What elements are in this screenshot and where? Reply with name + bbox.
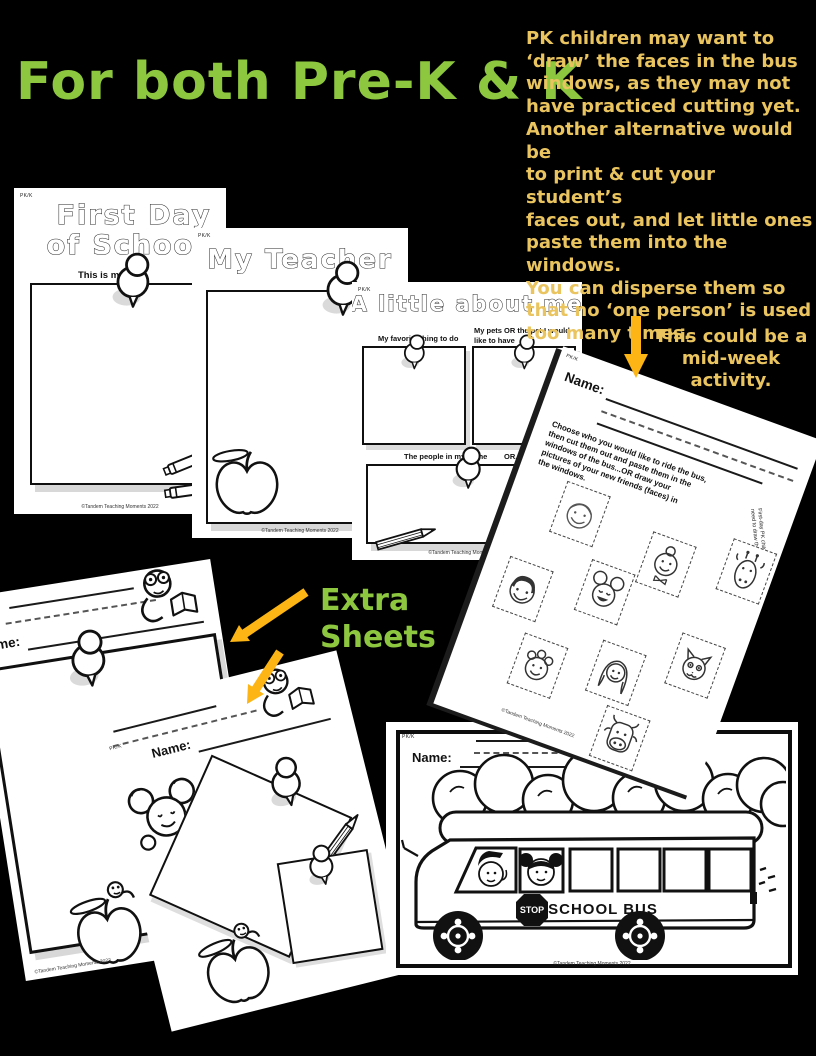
exhaust-dashes-icon — [759, 868, 776, 891]
face-cow-icon — [589, 705, 651, 771]
my-pets-label: like to have — [474, 336, 515, 345]
my-teacher-title: My Teacher — [192, 236, 408, 280]
page-title: For both Pre-K & K — [16, 52, 516, 112]
grade-corner-label: PK/K — [402, 734, 415, 740]
face-boy-dark-hair-icon — [492, 556, 554, 622]
bus-window — [618, 849, 660, 891]
flyer-page: PK/K First Day of School This is me! ©Ta… — [0, 0, 816, 1056]
pushpin-icon — [400, 334, 430, 372]
face-cat-icon — [664, 632, 726, 698]
extra-sheets-label: Extra Sheets — [320, 582, 436, 656]
svg-text:First Day: First Day — [57, 200, 212, 231]
name-label: Name: — [563, 369, 607, 397]
face-boy-curly-hair-icon — [507, 632, 569, 698]
pushpin-icon — [60, 626, 119, 695]
apple-icon — [208, 448, 286, 520]
bus-wheel-icon — [615, 911, 665, 960]
face-girl-with-bun-icon — [635, 531, 697, 597]
school-bus-illustration: STOP SCHOOL BUS — [398, 752, 786, 960]
bus-window — [664, 849, 706, 891]
svg-text:STOP: STOP — [520, 905, 544, 915]
name-label: Name: — [0, 634, 21, 655]
bus-window — [570, 849, 612, 891]
bus-wheel-icon — [433, 911, 483, 960]
write-line — [113, 705, 216, 733]
bus-window — [709, 849, 751, 891]
diagonal-arrows-icon — [222, 580, 322, 712]
face-mouse-icon — [574, 559, 636, 625]
grade-corner-label: PK/K — [565, 353, 579, 363]
name-label: Name: — [150, 737, 192, 761]
face-boy-smiling-icon — [549, 481, 611, 547]
pushpin-icon — [110, 252, 158, 312]
midweek-note: This could be a mid-week activity. — [648, 326, 814, 392]
copyright-footer: ©Tandem Teaching Moments 2022 — [386, 961, 798, 967]
intro-note: PK children may want to ‘draw’ the faces… — [526, 28, 816, 346]
pushpin-icon — [450, 446, 488, 492]
face-girl-long-hair-icon — [585, 640, 647, 706]
girl-passenger-icon — [519, 849, 563, 892]
